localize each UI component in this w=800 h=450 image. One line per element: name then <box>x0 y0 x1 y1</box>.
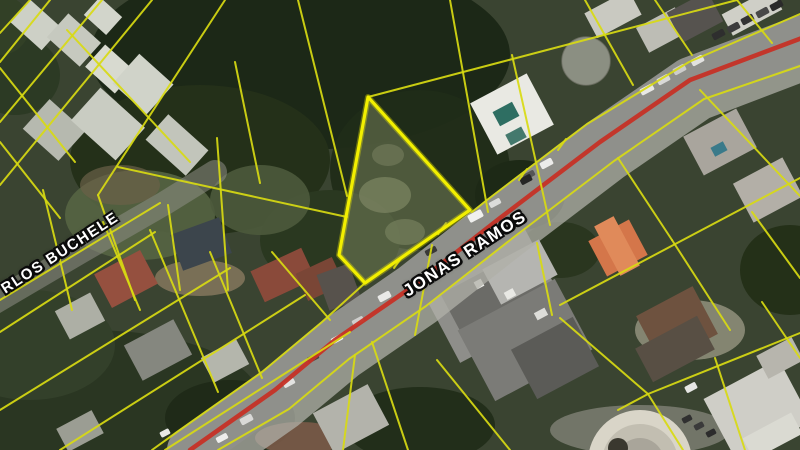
satellite-map-view: JONAS RAMOS RLOS BUCHELE <box>0 0 800 450</box>
map-canvas <box>0 0 800 450</box>
vegetation-patch <box>155 260 245 296</box>
